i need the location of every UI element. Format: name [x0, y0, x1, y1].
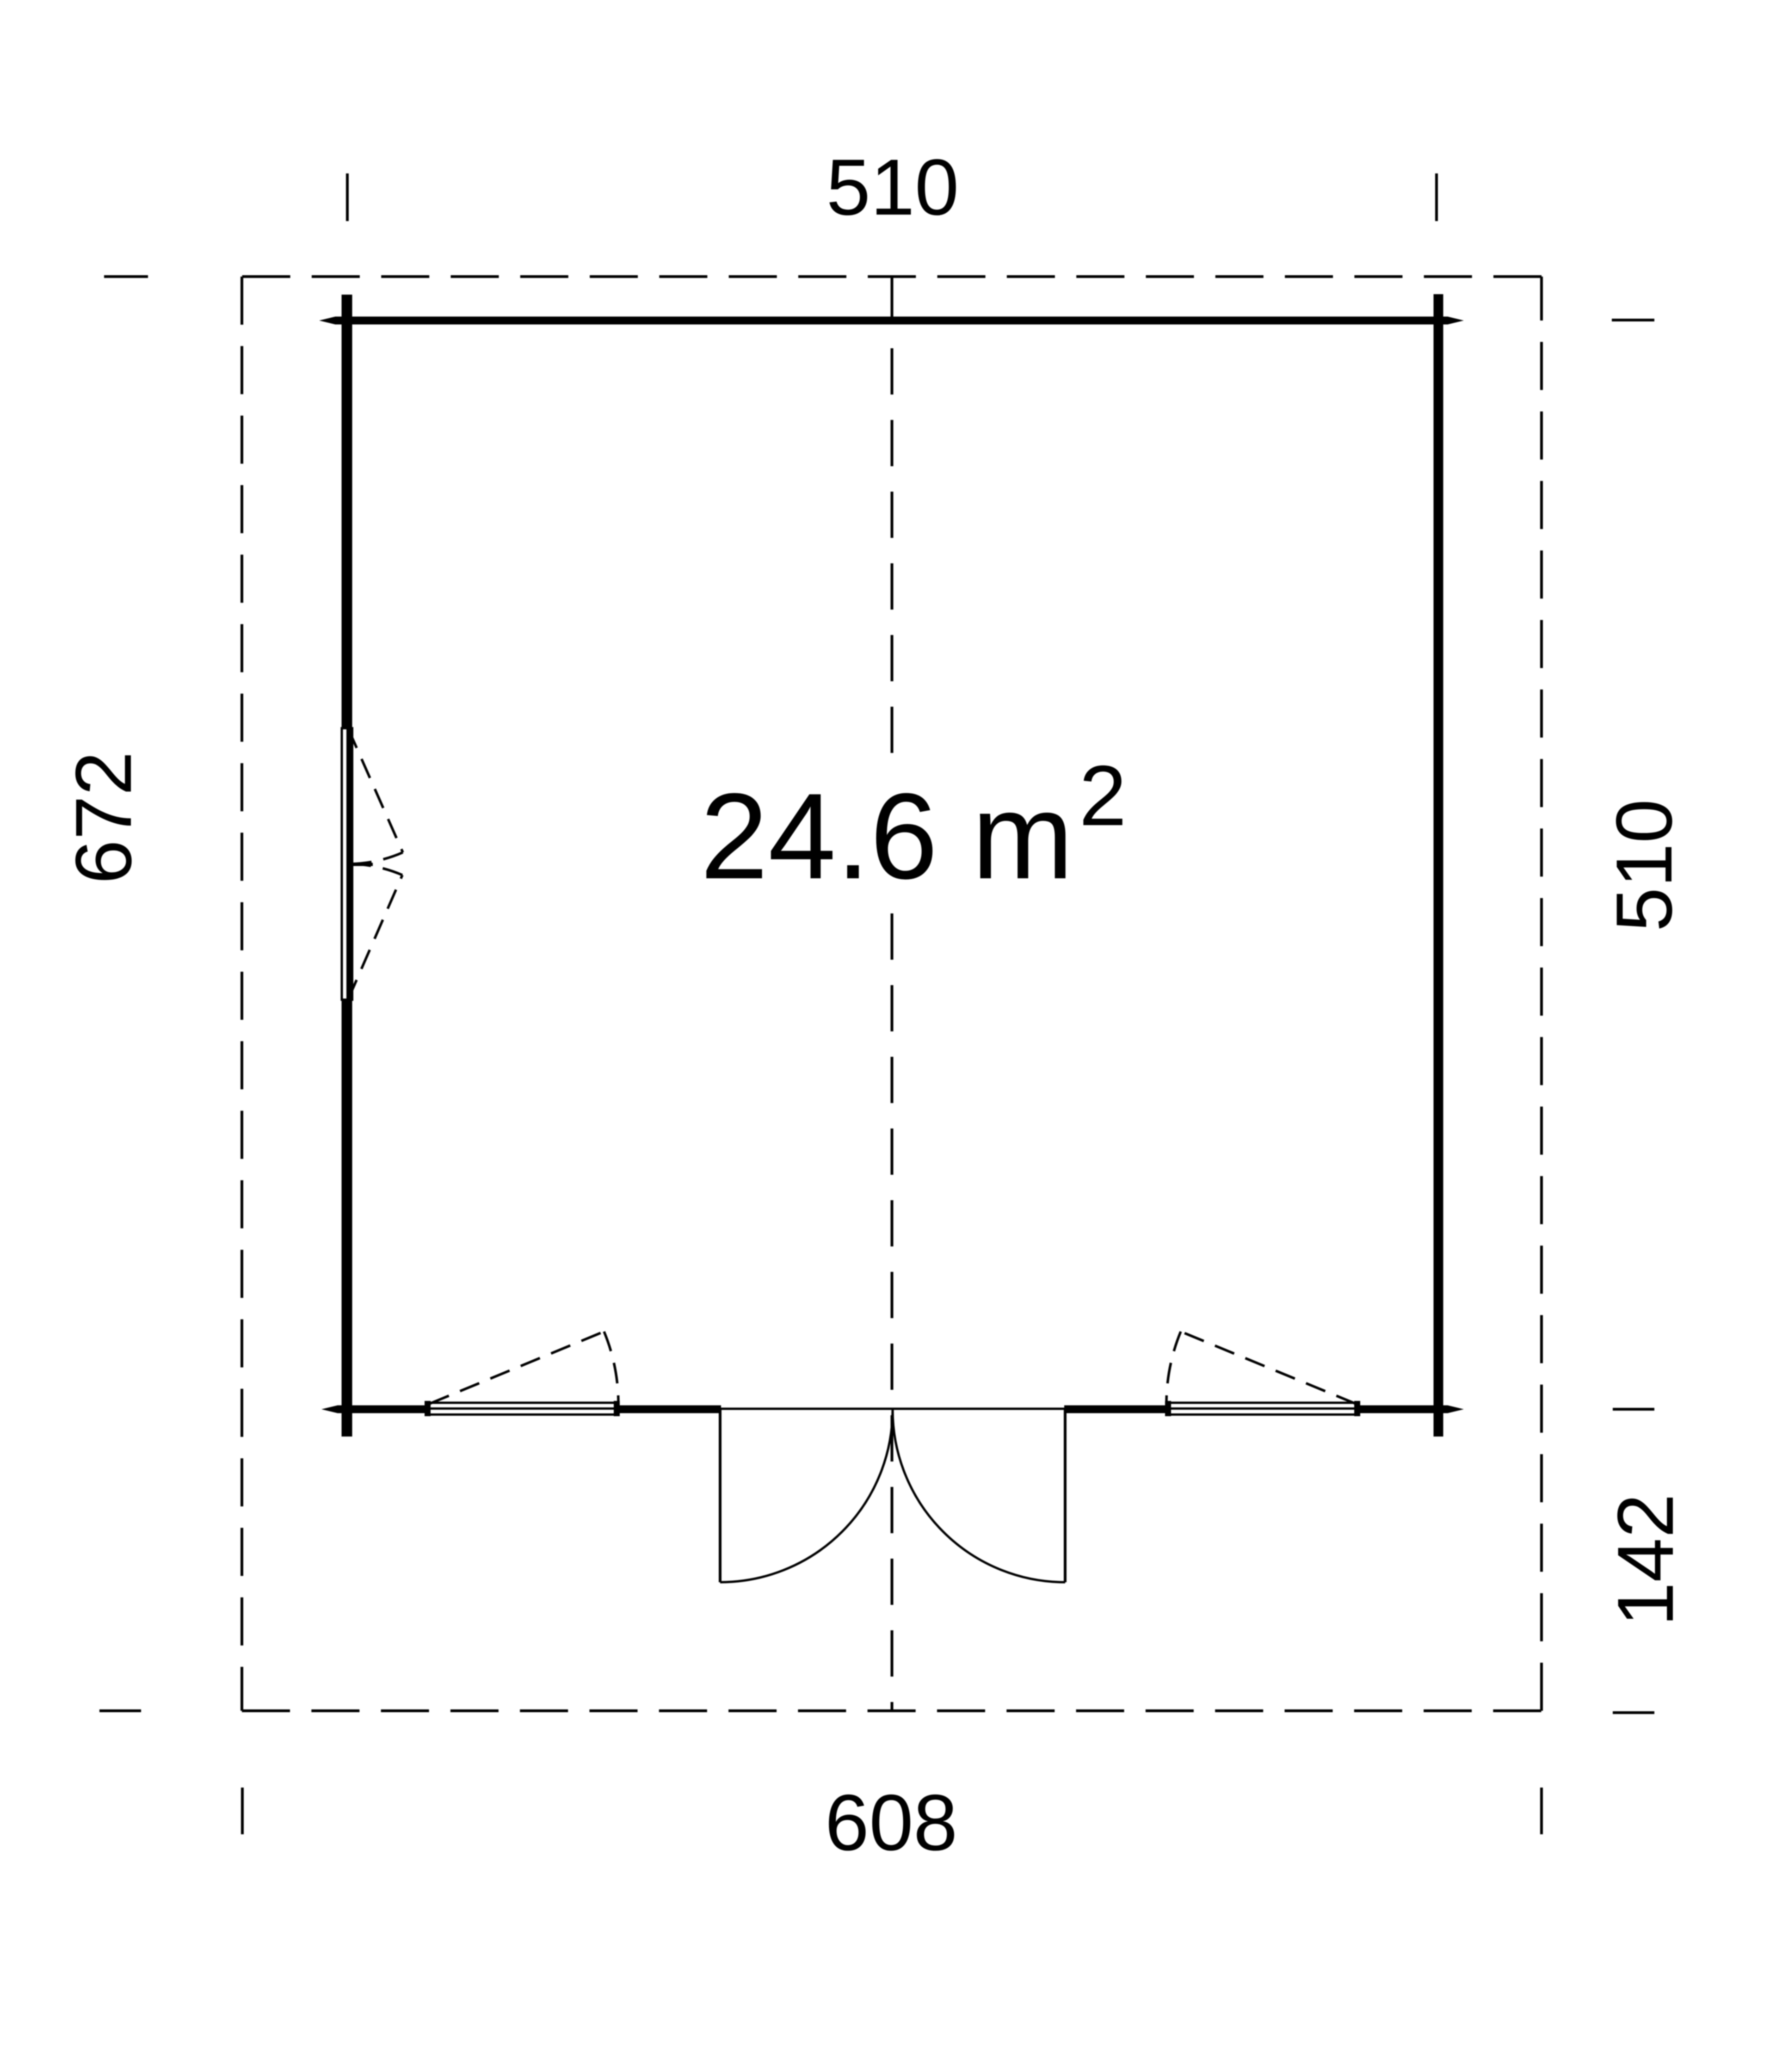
- svg-text:24.6 m2: 24.6 m2: [700, 748, 1127, 904]
- svg-text:510: 510: [1600, 799, 1689, 932]
- svg-text:510: 510: [826, 143, 959, 232]
- svg-text:608: 608: [825, 1778, 958, 1867]
- svg-text:672: 672: [59, 752, 148, 884]
- svg-text:142: 142: [1601, 1494, 1690, 1627]
